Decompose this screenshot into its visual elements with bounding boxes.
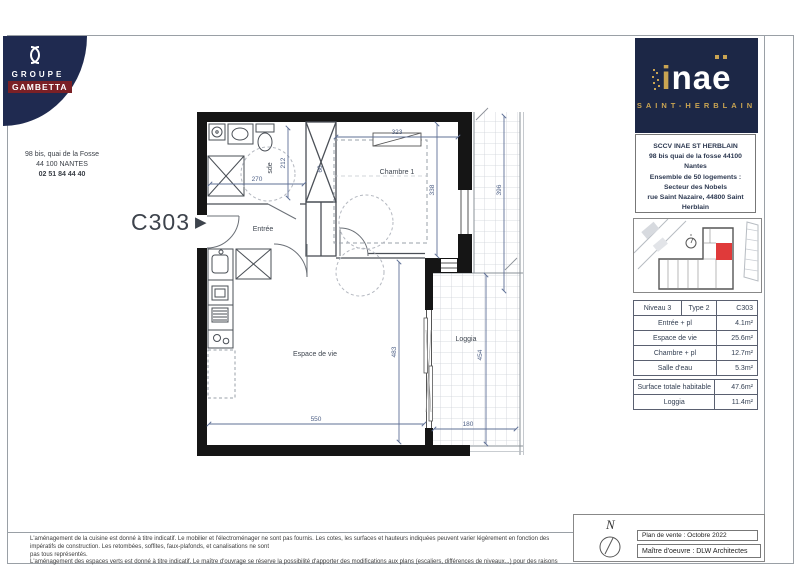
type-cell: Type 2: [682, 301, 717, 316]
right-column-divider: [764, 35, 765, 562]
table-row: Salle d'eau 5.3m²: [634, 361, 758, 376]
address-line2: 44 100 NANTES: [6, 160, 118, 170]
plan-date-field: Plan de vente : Octobre 2022: [637, 530, 758, 541]
inae-logo: inae SAINT-HERBLAIN: [635, 38, 758, 133]
sccv-name: SCCV INAE ST HERBLAIN: [638, 142, 753, 152]
table-row: Surface totale habitable 47.6m²: [634, 380, 758, 395]
bed: [334, 133, 427, 243]
address-line1: 98 bis, quai de la Fosse: [6, 150, 118, 160]
room-label-chambre: Chambre 1: [380, 169, 415, 176]
room-label-entree: Entrée: [253, 226, 274, 233]
svg-text:338: 338: [429, 184, 436, 195]
legal-line2: pas tous représentés.: [30, 552, 570, 560]
total-area: 11.4m²: [715, 395, 758, 410]
step-window: [441, 259, 457, 272]
svg-text:180: 180: [463, 421, 474, 428]
inae-city: SAINT-HERBLAIN: [637, 101, 756, 110]
inae-letter-i: i: [661, 59, 671, 96]
pixel-dust-icon: [653, 69, 655, 71]
surfaces-total-table: Surface totale habitable 47.6m² Loggia 1…: [633, 379, 758, 410]
sales-plan-page: GROUPE GAMBETTA 98 bis, quai de la Fosse…: [0, 0, 800, 566]
bathroom-fixtures: [208, 124, 274, 196]
project-street: rue Saint Nazaire, 44800 Saint Herblain: [638, 193, 753, 213]
gambetta-monogram-icon: [15, 42, 55, 68]
inae-wordmark: inae: [661, 61, 731, 94]
inae-letters-na: na: [672, 59, 713, 96]
gambetta-address: 98 bis, quai de la Fosse 44 100 NANTES 0…: [6, 150, 118, 179]
groupe-wordmark: GROUPE: [3, 70, 73, 79]
surfaces-table: Niveau 3 Type 2 C303 Entrée + pl 4.1m² E…: [633, 300, 758, 410]
north-arrow-icon: N: [592, 517, 628, 561]
svg-text:323: 323: [392, 129, 403, 136]
room-area: 25.6m²: [716, 331, 757, 346]
turning-circle-living: [336, 248, 384, 296]
table-row: Loggia 11.4m²: [634, 395, 758, 410]
room-area: 5.3m²: [716, 361, 757, 376]
legal-line3: L'aménagement des espaces verts est donn…: [30, 559, 570, 566]
sccv-address: 98 bis quai de la fosse 44100 Nantes: [638, 152, 753, 172]
project-size: Ensemble de 50 logements :: [638, 173, 753, 183]
svg-text:396: 396: [496, 184, 503, 195]
total-area: 47.6m²: [715, 380, 758, 395]
table-row: Espace de vie 25.6m²: [634, 331, 758, 346]
svg-text:270: 270: [252, 176, 263, 183]
legal-line1: L'aménagement de la cuisine est donné à …: [30, 536, 570, 552]
svg-text:60: 60: [317, 165, 324, 173]
svg-text:212: 212: [280, 157, 287, 168]
footer-divider: [8, 532, 574, 533]
site-key-plan: [633, 218, 762, 293]
room-area: 12.7m²: [716, 346, 757, 361]
svg-text:454: 454: [477, 349, 484, 360]
total-label: Surface totale habitable: [634, 380, 715, 395]
doors: [207, 204, 368, 277]
unit-cell: C303: [716, 301, 757, 316]
room-label-espace: Espace de vie: [293, 351, 337, 358]
table-row: Chambre + pl 12.7m²: [634, 346, 758, 361]
room-label: Espace de vie: [634, 331, 717, 346]
room-area: 4.1m²: [716, 316, 757, 331]
surfaces-header-table: Niveau 3 Type 2 C303 Entrée + pl 4.1m² E…: [633, 300, 758, 376]
table-row: Entrée + pl 4.1m²: [634, 316, 758, 331]
svg-text:N: N: [605, 517, 616, 532]
bedroom-window: [458, 190, 472, 234]
room-label-sde: sde: [267, 162, 274, 173]
title-block: N Plan de vente : Octobre 2022 Maître d'…: [573, 514, 765, 562]
bay-window: [424, 310, 433, 428]
table-row: Niveau 3 Type 2 C303: [634, 301, 758, 316]
kitchen-fixtures: [208, 249, 271, 398]
room-label: Salle d'eau: [634, 361, 717, 376]
inae-letter-e: e: [712, 59, 731, 96]
sccv-info-box: SCCV INAE ST HERBLAIN 98 bis quai de la …: [635, 134, 756, 213]
svg-text:483: 483: [391, 346, 398, 357]
site-key-plan-drawing: [634, 219, 761, 292]
level-cell: Niveau 3: [634, 301, 682, 316]
architect-field: Maître d'oeuvre : DLW Architectes: [637, 544, 761, 558]
floor-plan: 323 338 396 212 270 60 483 550 454 180 s…: [150, 95, 560, 470]
room-label: Entrée + pl: [634, 316, 717, 331]
room-label: Chambre + pl: [634, 346, 717, 361]
turning-circle-bedroom: [339, 195, 393, 249]
highlighted-unit: [716, 243, 732, 260]
address-phone: 02 51 84 44 40: [6, 170, 118, 180]
legal-notice: L'aménagement de la cuisine est donné à …: [30, 536, 570, 566]
room-label-loggia: Loggia: [455, 336, 476, 343]
project-sector: Secteur des Nobels: [638, 183, 753, 193]
total-label: Loggia: [634, 395, 715, 410]
svg-text:550: 550: [311, 416, 322, 423]
gambetta-wordmark: GAMBETTA: [8, 81, 72, 93]
